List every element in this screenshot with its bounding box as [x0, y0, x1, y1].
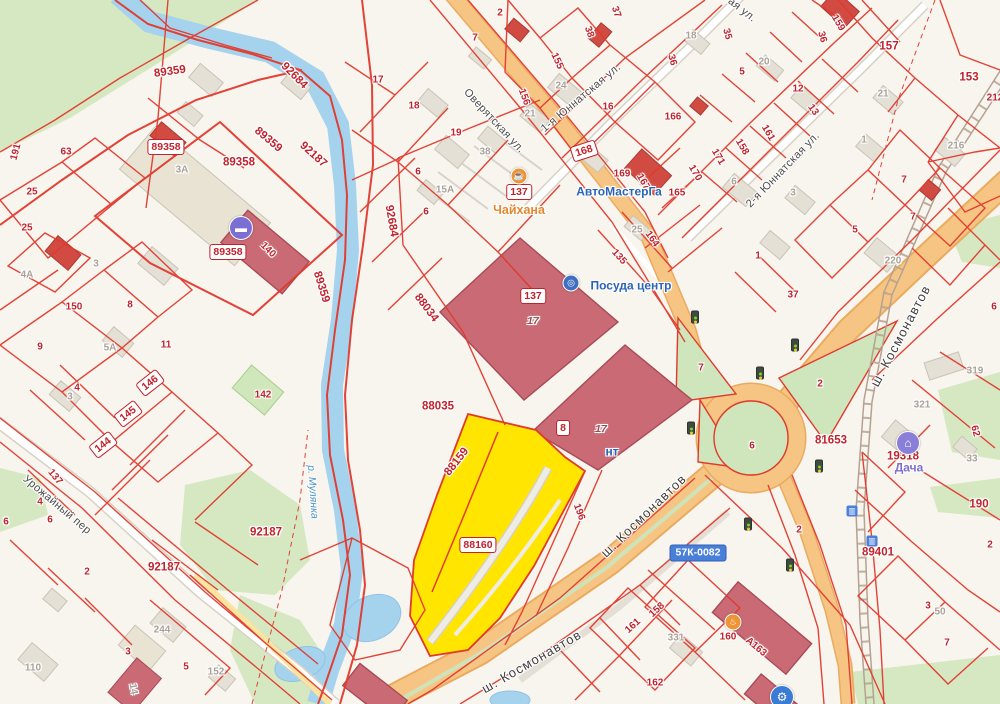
map-canvas[interactable] [0, 0, 1000, 704]
dumbbell-icon[interactable]: ▬ [229, 216, 253, 240]
transit-icon[interactable]: ▥ [867, 536, 878, 547]
traffic-light-icon [744, 518, 752, 531]
car-icon[interactable]: ⚙ [770, 685, 794, 704]
traffic-light-icon [687, 422, 695, 435]
traffic-light-icon [691, 311, 699, 324]
selected-parcels[interactable] [410, 414, 585, 656]
cafe-icon[interactable]: ☕ [511, 168, 528, 185]
traffic-light-icon [786, 559, 794, 572]
cadastral-map-viewport[interactable]: 8935989359921879268492684893588935988034… [0, 0, 1000, 704]
river [118, 0, 352, 704]
house-icon[interactable]: ⌂ [896, 431, 920, 455]
traffic-light-icon [756, 367, 764, 380]
food-icon[interactable]: ♨ [725, 614, 742, 631]
traffic-light-icon [791, 339, 799, 352]
dishes-icon[interactable]: ◎ [563, 275, 580, 292]
traffic-light-icon [815, 460, 823, 473]
transit-icon[interactable]: ▥ [847, 506, 858, 517]
